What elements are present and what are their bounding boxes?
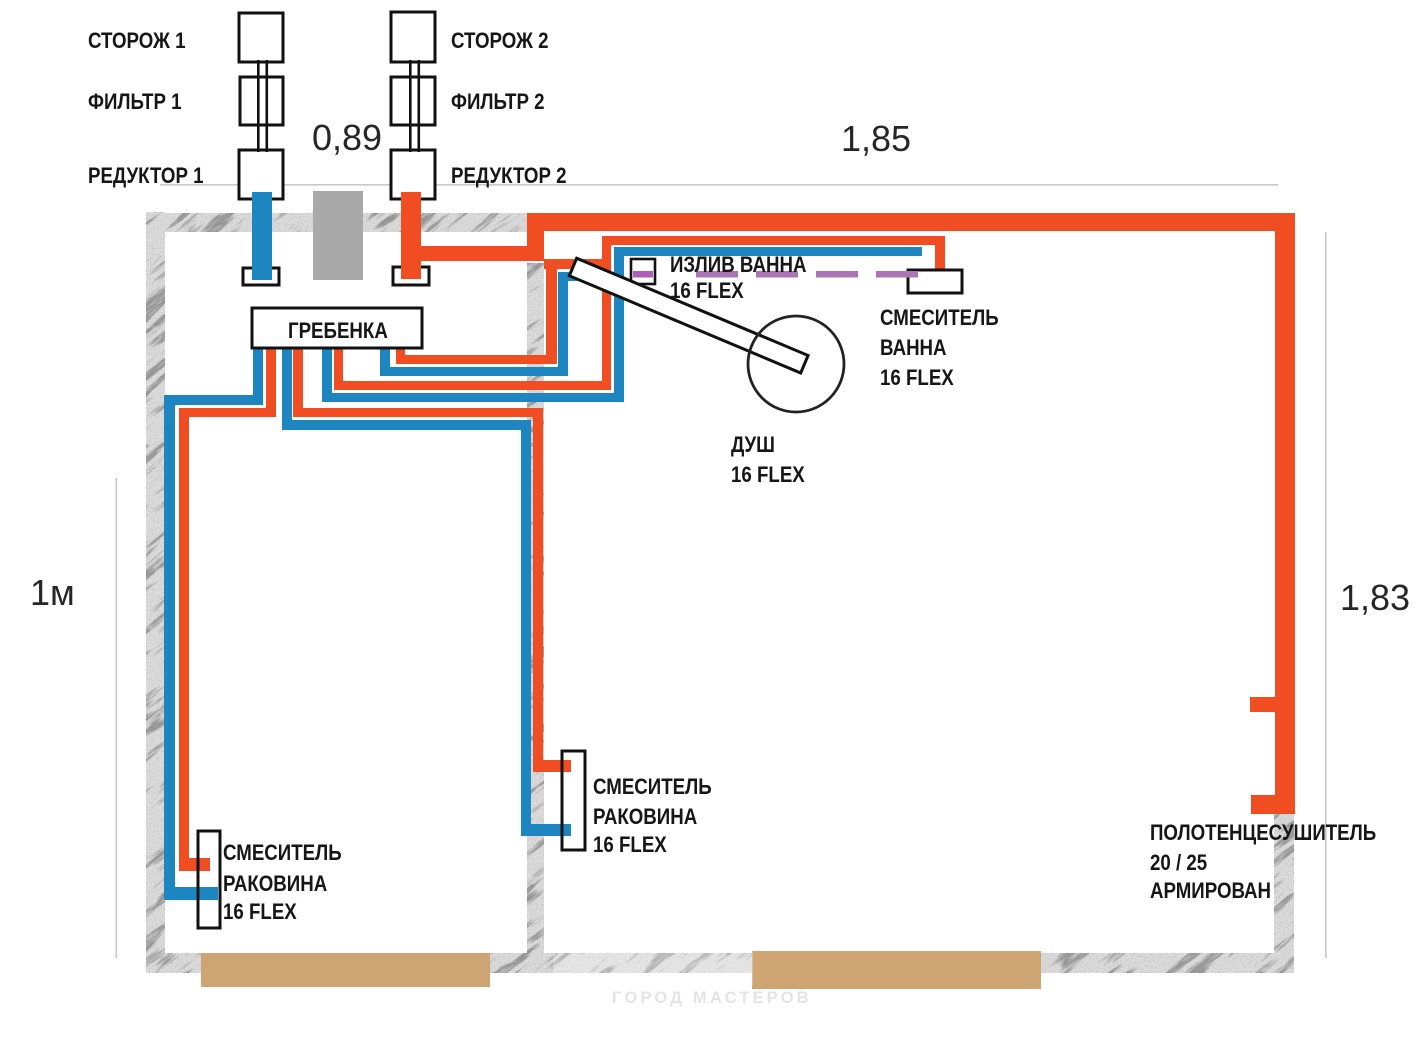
svg-text:РЕДУКТОР 2: РЕДУКТОР 2 xyxy=(451,165,567,189)
svg-text:ФИЛЬТР 1: ФИЛЬТР 1 xyxy=(88,91,182,115)
svg-text:ГОРОД МАСТЕРОВ: ГОРОД МАСТЕРОВ xyxy=(612,989,812,1007)
svg-text:1,85: 1,85 xyxy=(841,118,911,159)
svg-text:РАКОВИНА: РАКОВИНА xyxy=(223,873,327,897)
svg-text:20 / 25: 20 / 25 xyxy=(1150,852,1207,876)
svg-text:ИЗЛИВ ВАННА: ИЗЛИВ ВАННА xyxy=(670,254,807,278)
svg-text:16 FLEX: 16 FLEX xyxy=(593,834,667,858)
svg-text:1,83: 1,83 xyxy=(1340,577,1410,618)
svg-text:1м: 1м xyxy=(30,572,75,613)
svg-text:СТОРОЖ 1: СТОРОЖ 1 xyxy=(88,30,186,54)
svg-text:АРМИРОВАН: АРМИРОВАН xyxy=(1150,880,1271,904)
svg-text:16 FLEX: 16 FLEX xyxy=(223,901,297,925)
svg-text:ГРЕБЕНКА: ГРЕБЕНКА xyxy=(288,320,388,344)
svg-text:ВАННА: ВАННА xyxy=(880,337,947,361)
svg-text:РЕДУКТОР 1: РЕДУКТОР 1 xyxy=(88,165,204,189)
svg-text:СМЕСИТЕЛЬ: СМЕСИТЕЛЬ xyxy=(880,307,999,331)
svg-text:16 FLEX: 16 FLEX xyxy=(731,464,805,488)
svg-text:0,89: 0,89 xyxy=(312,117,382,158)
svg-text:16 FLEX: 16 FLEX xyxy=(880,367,954,391)
svg-text:ПОЛОТЕНЦЕСУШИТЕЛЬ: ПОЛОТЕНЦЕСУШИТЕЛЬ xyxy=(1150,822,1376,846)
svg-text:СМЕСИТЕЛЬ: СМЕСИТЕЛЬ xyxy=(593,776,712,800)
svg-text:ДУШ: ДУШ xyxy=(731,434,775,458)
svg-text:СМЕСИТЕЛЬ: СМЕСИТЕЛЬ xyxy=(223,842,342,866)
svg-text:РАКОВИНА: РАКОВИНА xyxy=(593,806,697,830)
svg-text:16 FLEX: 16 FLEX xyxy=(670,280,744,304)
svg-text:СТОРОЖ 2: СТОРОЖ 2 xyxy=(451,30,549,54)
svg-text:ФИЛЬТР 2: ФИЛЬТР 2 xyxy=(451,91,545,115)
